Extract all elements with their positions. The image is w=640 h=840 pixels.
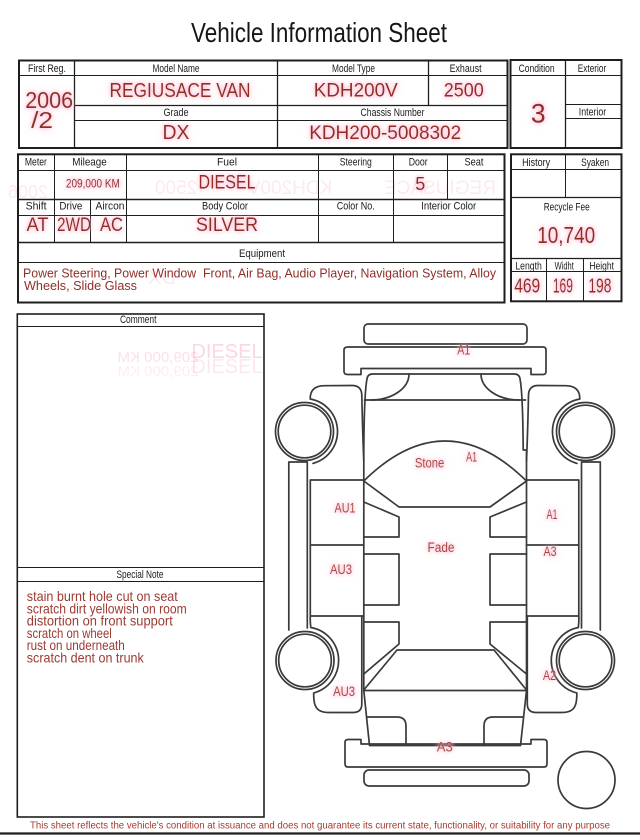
svg-text:AT: AT xyxy=(27,215,49,236)
svg-text:209,000 KM: 209,000 KM xyxy=(66,177,120,191)
svg-text:DX: DX xyxy=(163,122,190,144)
svg-text:5: 5 xyxy=(415,174,425,194)
svg-text:Comment: Comment xyxy=(120,314,157,326)
svg-text:Height: Height xyxy=(589,260,614,272)
svg-text:209,000 KM: 209,000 KM xyxy=(118,363,199,380)
svg-text:REGIUSACE: REGIUSACE xyxy=(384,178,496,199)
svg-text:First Reg.: First Reg. xyxy=(28,63,66,75)
svg-text:A1: A1 xyxy=(547,507,558,522)
svg-text:Vehicle Information Sheet: Vehicle Information Sheet xyxy=(191,17,447,48)
svg-text:Exterior: Exterior xyxy=(578,63,607,75)
svg-text:Aircon: Aircon xyxy=(96,201,125,213)
svg-text:Model Type: Model Type xyxy=(332,63,375,75)
svg-text:Exhaust: Exhaust xyxy=(450,63,482,75)
svg-text:This sheet reflects the vehicl: This sheet reflects the vehicle's condit… xyxy=(30,821,610,832)
svg-text:Interior Color: Interior Color xyxy=(421,201,476,213)
svg-text:AU1: AU1 xyxy=(335,501,356,516)
svg-text:2500: 2500 xyxy=(155,178,197,199)
svg-text:Equipment: Equipment xyxy=(239,248,285,260)
svg-text:169: 169 xyxy=(553,276,573,298)
svg-text:Door: Door xyxy=(409,157,428,169)
svg-text:A3: A3 xyxy=(437,740,453,755)
svg-text:Seat: Seat xyxy=(465,157,484,169)
svg-text:Mileage: Mileage xyxy=(72,157,107,169)
svg-text:Color No.: Color No. xyxy=(337,201,375,213)
svg-text:Interior: Interior xyxy=(579,107,607,119)
svg-text:A1: A1 xyxy=(466,449,477,464)
svg-text:DIESEL: DIESEL xyxy=(199,172,256,193)
svg-text:scratch dent on trunk: scratch dent on trunk xyxy=(27,650,145,666)
svg-text:Fuel: Fuel xyxy=(217,157,237,169)
svg-text:KDH200V: KDH200V xyxy=(314,80,398,102)
svg-text:Drive: Drive xyxy=(59,201,82,213)
svg-text:2WD: 2WD xyxy=(57,215,91,236)
svg-text:Length: Length xyxy=(515,260,542,272)
svg-text:Stone: Stone xyxy=(415,455,445,470)
svg-text:A1: A1 xyxy=(457,343,470,358)
svg-text:Condition: Condition xyxy=(519,63,555,75)
svg-text:/2: /2 xyxy=(31,107,53,133)
svg-text:Steering: Steering xyxy=(340,157,372,169)
svg-text:Meter: Meter xyxy=(25,157,47,169)
svg-text:AU3: AU3 xyxy=(330,562,352,577)
svg-text:KDH200V: KDH200V xyxy=(247,178,332,199)
svg-text:History: History xyxy=(522,157,551,169)
svg-text:Model Name: Model Name xyxy=(153,63,200,75)
svg-text:SILVER: SILVER xyxy=(196,215,258,236)
svg-text:Chassis Number: Chassis Number xyxy=(361,107,425,119)
svg-text:Recycle Fee: Recycle Fee xyxy=(544,201,590,213)
svg-text:198: 198 xyxy=(588,276,611,298)
svg-text:KDH200-5008302: KDH200-5008302 xyxy=(309,122,461,144)
svg-text:REGIUSACE VAN: REGIUSACE VAN xyxy=(110,80,251,102)
svg-text:469: 469 xyxy=(514,276,540,298)
svg-text:Grade: Grade xyxy=(164,107,189,119)
svg-text:Fade: Fade xyxy=(428,540,455,555)
svg-text:DIESEL: DIESEL xyxy=(191,356,262,378)
svg-text:Body Color: Body Color xyxy=(202,201,248,213)
svg-text:Widht: Widht xyxy=(555,260,574,272)
svg-text:10,740: 10,740 xyxy=(537,222,595,248)
svg-text:AC: AC xyxy=(100,215,123,236)
svg-text:3: 3 xyxy=(531,99,546,129)
svg-text:Special Note: Special Note xyxy=(117,569,164,581)
svg-text:Wheels, Slide Glass: Wheels, Slide Glass xyxy=(24,278,137,293)
svg-text:A3: A3 xyxy=(544,544,557,559)
svg-text:Shift: Shift xyxy=(26,201,47,213)
svg-text:2500: 2500 xyxy=(444,80,484,102)
svg-text:A2: A2 xyxy=(543,668,556,683)
svg-text:AU3: AU3 xyxy=(333,684,355,699)
svg-text:Syaken: Syaken xyxy=(581,157,609,169)
